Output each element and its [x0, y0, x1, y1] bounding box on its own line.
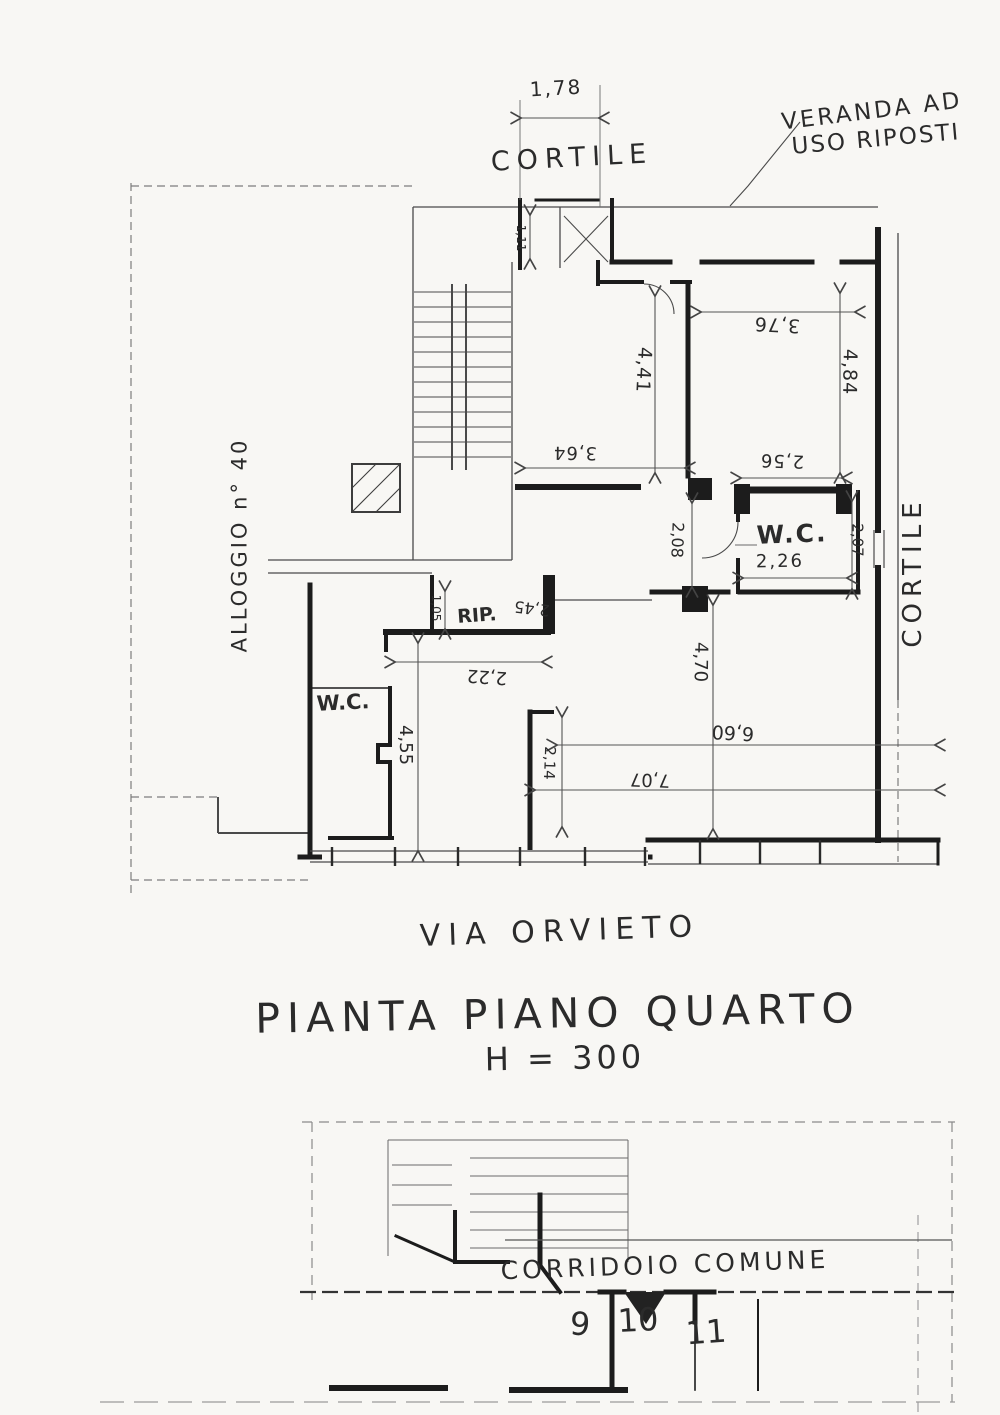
window-row: [310, 530, 884, 866]
room-label-rip: RIP.: [457, 605, 498, 627]
hatched-shaft: [352, 464, 400, 512]
stairs-lower: [388, 1140, 628, 1262]
plan-height-note: H = 300: [485, 1041, 646, 1076]
dim-label-3-76: 3,76: [753, 313, 800, 334]
dim-label-4-55: 4,55: [396, 725, 414, 765]
stairs-upper: [414, 284, 511, 470]
dim-label-2-08: 2,08: [668, 522, 685, 558]
dim-label-2-07: 2,07: [850, 523, 865, 556]
unit-label-11: 11: [685, 1315, 728, 1350]
dim-label-2-26: 2,26: [756, 553, 804, 572]
dimension-lines: [394, 118, 936, 852]
dim-label-2-22: 2,22: [466, 666, 507, 687]
dim-label-3-64: 3,64: [553, 443, 597, 462]
dim-label-7-07: 7,07: [630, 769, 671, 788]
unit-label-10: 10: [617, 1303, 659, 1337]
dim-label-2-56: 2,56: [760, 450, 805, 470]
courtyard-label-right: CORTILE: [900, 496, 926, 647]
dim-label-6-60: 6,60: [711, 721, 754, 742]
courtyard-label-top: CORTILE: [490, 140, 654, 175]
unit-label-9: 9: [569, 1307, 592, 1340]
dim-label-2-14: 2,14: [541, 746, 557, 780]
dim-label-1-78: 1,78: [529, 77, 583, 100]
dim-label-1-11: 1,11: [515, 225, 527, 252]
dim-label-4-70: 4,70: [691, 642, 710, 682]
floor-plan-drawing: [0, 0, 1000, 1415]
room-label-wc-right: W.C.: [756, 520, 828, 547]
dim-label-2-45: 2,45: [513, 598, 550, 618]
room-label-wc-left: W.C.: [316, 691, 370, 715]
dim-label-1-05: 1,05: [430, 595, 442, 622]
neighbor-unit-label: ALLOGGIO n° 40: [230, 438, 251, 653]
scanned-floor-plan-sheet: 1,78 CORTILE VERANDA AD USO RIPOSTI 3,76…: [0, 0, 1000, 1415]
plan-title: PIANTA PIANO QUARTO: [255, 988, 861, 1040]
dim-label-4-41: 4,41: [632, 346, 653, 393]
dim-label-4-84: 4,84: [839, 349, 859, 396]
